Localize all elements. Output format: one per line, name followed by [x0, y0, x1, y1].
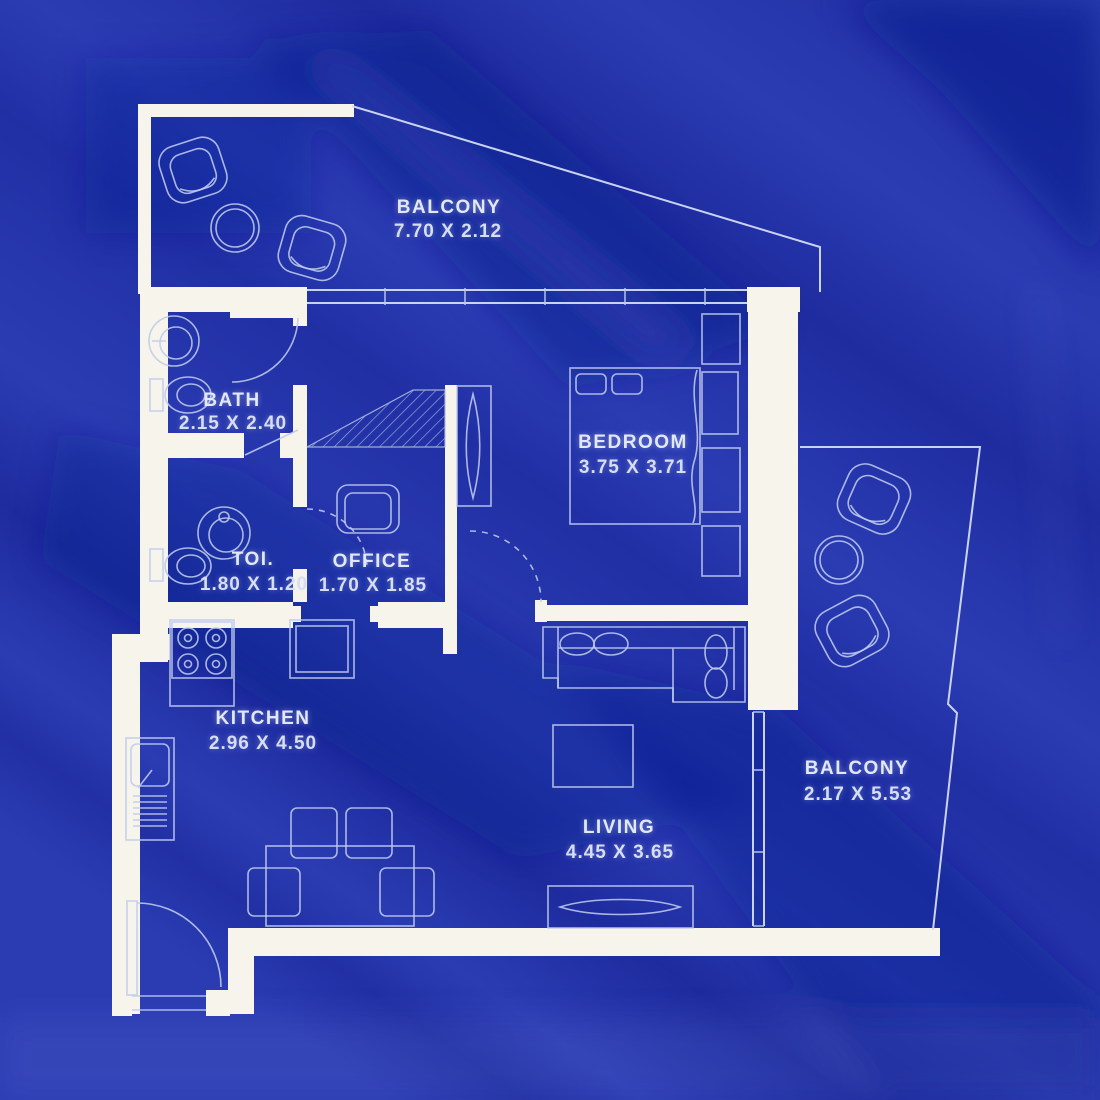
- closet-side-wall: [445, 385, 457, 602]
- balcony-top-wall-left: [138, 104, 151, 294]
- room-label-bath: BATH: [203, 390, 260, 411]
- room-dims-bath: 2.15 X 2.40: [179, 413, 287, 434]
- bedroom-door-jamb: [535, 600, 547, 622]
- room-label-balcony-right: BALCONY: [805, 758, 909, 779]
- kitchen-door-tab-right: [370, 606, 378, 622]
- fold-light-bottom: [0, 1018, 1100, 1100]
- right-pier-wall: [748, 287, 798, 710]
- room-dims-kitchen: 2.96 X 4.50: [209, 733, 317, 754]
- room-label-kitchen: KITCHEN: [216, 708, 311, 729]
- kitchen-stub-wall: [443, 602, 457, 654]
- entry-door-tab-left: [112, 990, 132, 1016]
- room-label-toilet: TOI.: [232, 549, 275, 570]
- bottom-wall: [228, 928, 940, 956]
- floor-plan-image: BALCONY 7.70 X 2.12 BATH 2.15 X 2.40 BED…: [0, 0, 1100, 1100]
- bath-bottom-wall: [140, 433, 244, 458]
- left-wall-jog: [112, 634, 170, 660]
- room-label-bedroom: BEDROOM: [578, 432, 688, 453]
- bottom-wall-jog: [228, 928, 254, 1014]
- room-dims-office: 1.70 X 1.85: [319, 575, 427, 596]
- room-dims-bedroom: 3.75 X 3.71: [579, 457, 687, 478]
- room-label-balcony-top: BALCONY: [397, 197, 501, 218]
- room-label-living: LIVING: [583, 817, 655, 838]
- room-label-office: OFFICE: [333, 551, 412, 572]
- fold-shadow-topleft: [86, 58, 311, 233]
- room-dims-living: 4.45 X 3.65: [566, 842, 674, 863]
- room-dims-balcony-top: 7.70 X 2.12: [394, 221, 502, 242]
- bedroom-bottom-wall: [543, 605, 748, 621]
- floor-plan-svg: BALCONY 7.70 X 2.12 BATH 2.15 X 2.40 BED…: [0, 0, 1100, 1100]
- room-dims-balcony-right: 2.17 X 5.53: [804, 784, 912, 805]
- balcony-top-wall-top: [138, 104, 354, 117]
- toilet-bottom-wall: [140, 602, 293, 628]
- bath-door-leaf: [230, 306, 300, 318]
- entry-door-tab-right: [206, 990, 230, 1016]
- room-dims-toilet: 1.80 X 1.20: [200, 574, 308, 595]
